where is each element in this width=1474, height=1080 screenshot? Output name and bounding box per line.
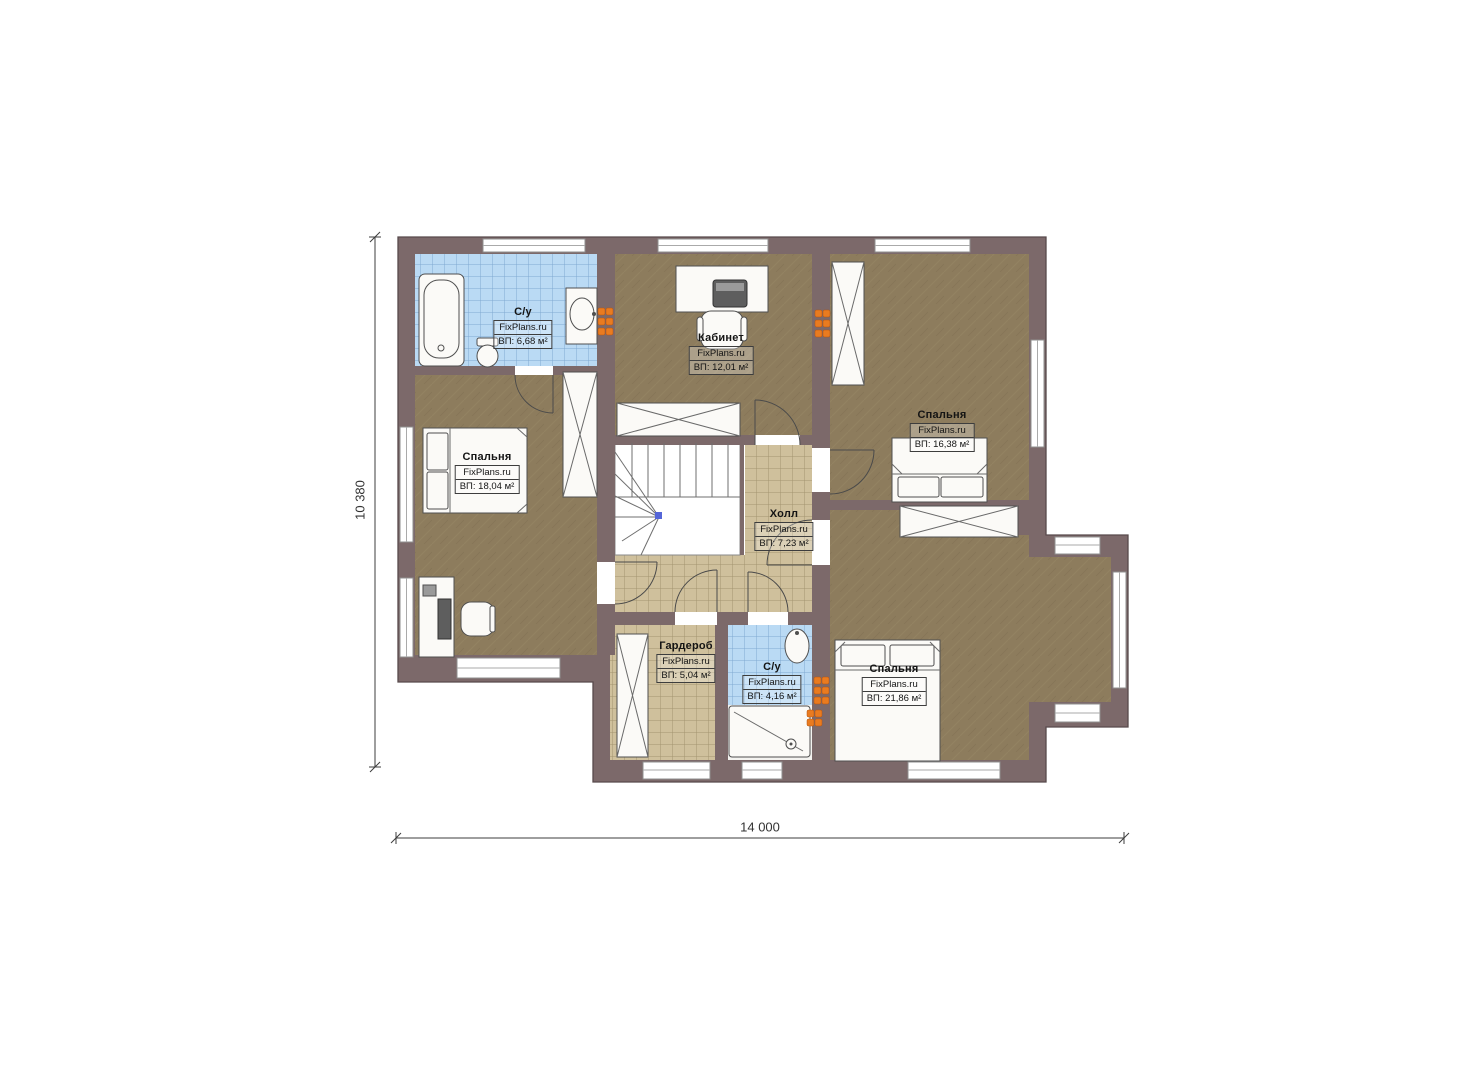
stairwell-floor xyxy=(615,443,740,555)
wardrobe-icon xyxy=(832,262,864,385)
room-area: ВП: 12,01 м² xyxy=(690,361,753,374)
watermark: FixPlans.ru xyxy=(456,466,519,480)
room-name: Кабинет xyxy=(689,332,754,344)
watermark: FixPlans.ru xyxy=(911,424,974,438)
room-info-table: FixPlans.ru ВП: 4,16 м² xyxy=(742,675,801,704)
room-label-hall: Холл FixPlans.ru ВП: 7,23 м² xyxy=(754,508,813,551)
watermark: FixPlans.ru xyxy=(743,676,800,690)
room-area: ВП: 16,38 м² xyxy=(911,438,974,451)
room-area: ВП: 18,04 м² xyxy=(456,480,519,493)
closet-icon xyxy=(617,403,740,436)
room-label-bedroom-top-right: Спальня FixPlans.ru ВП: 16,38 м² xyxy=(910,409,975,452)
room-label-bedroom-left: Спальня FixPlans.ru ВП: 18,04 м² xyxy=(455,451,520,494)
room-name: Холл xyxy=(754,508,813,520)
room-area: ВП: 21,86 м² xyxy=(863,692,926,705)
watermark: FixPlans.ru xyxy=(863,678,926,692)
sink-icon xyxy=(566,288,597,344)
room-label-bathroom-top-left: С/у FixPlans.ru ВП: 6,68 м² xyxy=(493,306,552,349)
floor-plan-drawing xyxy=(0,0,1474,1080)
room-info-table: FixPlans.ru ВП: 16,38 м² xyxy=(910,423,975,452)
room-floor-hall-bottom xyxy=(615,555,745,612)
room-label-bedroom-bottom-right: Спальня FixPlans.ru ВП: 21,86 м² xyxy=(862,663,927,706)
office-chair-icon xyxy=(461,602,495,636)
room-name: Спальня xyxy=(862,663,927,675)
room-area: ВП: 6,68 м² xyxy=(494,335,551,348)
room-label-wardrobe-room: Гардероб FixPlans.ru ВП: 5,04 м² xyxy=(656,640,715,683)
desk-icon xyxy=(419,577,454,657)
room-info-table: FixPlans.ru ВП: 12,01 м² xyxy=(689,346,754,375)
room-floor-bay-window xyxy=(1029,557,1111,702)
watermark: FixPlans.ru xyxy=(690,347,753,361)
room-info-table: FixPlans.ru ВП: 6,68 м² xyxy=(493,320,552,349)
watermark: FixPlans.ru xyxy=(755,523,812,537)
room-label-bathroom-bottom: С/у FixPlans.ru ВП: 4,16 м² xyxy=(742,661,801,704)
stair-marker xyxy=(655,512,662,519)
room-info-table: FixPlans.ru ВП: 5,04 м² xyxy=(656,654,715,683)
wardrobe-icon xyxy=(617,634,648,757)
room-area: ВП: 4,16 м² xyxy=(743,690,800,703)
room-info-table: FixPlans.ru ВП: 18,04 м² xyxy=(455,465,520,494)
wardrobe-icon xyxy=(563,372,597,497)
room-name: Спальня xyxy=(910,409,975,421)
watermark: FixPlans.ru xyxy=(657,655,714,669)
bathtub-icon xyxy=(419,274,464,366)
room-name: С/у xyxy=(493,306,552,318)
room-name: С/у xyxy=(742,661,801,673)
dimension-depth-label: 10 380 xyxy=(353,480,368,520)
sink-icon xyxy=(785,629,809,663)
desk-icon xyxy=(676,266,768,312)
dimension-width-label: 14 000 xyxy=(740,820,780,835)
floor-plan-page: С/у FixPlans.ru ВП: 6,68 м² Кабинет FixP… xyxy=(0,0,1474,1080)
room-area: ВП: 5,04 м² xyxy=(657,669,714,682)
room-area: ВП: 7,23 м² xyxy=(755,537,812,550)
room-info-table: FixPlans.ru ВП: 7,23 м² xyxy=(754,522,813,551)
shower-tray-icon xyxy=(729,706,810,757)
room-label-office: Кабинет FixPlans.ru ВП: 12,01 м² xyxy=(689,332,754,375)
watermark: FixPlans.ru xyxy=(494,321,551,335)
wardrobe-icon xyxy=(900,506,1018,537)
room-info-table: FixPlans.ru ВП: 21,86 м² xyxy=(862,677,927,706)
room-name: Спальня xyxy=(455,451,520,463)
room-name: Гардероб xyxy=(656,640,715,652)
